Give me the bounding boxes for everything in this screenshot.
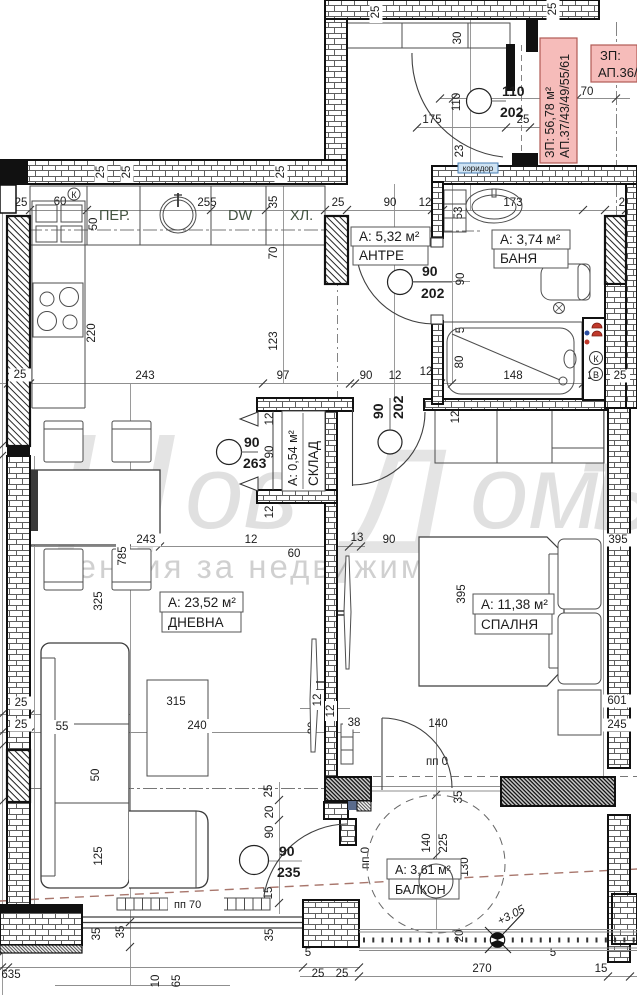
svg-text:202: 202 [421,285,445,301]
svg-text:23: 23 [454,145,466,158]
svg-text:ПЕР.: ПЕР. [99,208,130,224]
svg-text:12: 12 [389,370,402,382]
svg-text:315: 315 [166,696,185,708]
svg-text:395: 395 [608,534,627,546]
svg-text:50: 50 [90,769,102,782]
svg-text:255: 255 [197,197,216,209]
svg-text:АП.36/: АП.36/ [598,65,637,80]
svg-text:25: 25 [332,197,345,209]
svg-text:140: 140 [428,718,447,730]
svg-text:ЗП: 56,78 м²: ЗП: 56,78 м² [543,87,557,158]
svg-text:А: 23,52 м²: А: 23,52 м² [168,595,236,610]
svg-text:12: 12 [264,413,276,426]
svg-text:5: 5 [550,947,556,959]
svg-text:225: 225 [438,833,450,852]
svg-text:80: 80 [454,356,466,369]
svg-text:25: 25 [14,369,27,381]
svg-text:245: 245 [607,719,626,731]
svg-text:СКЛАД: СКЛАД [306,441,321,486]
svg-text:К: К [71,190,77,200]
svg-text:785: 785 [117,546,129,565]
svg-text:263: 263 [243,455,267,471]
svg-text:А: 5,32 м²: А: 5,32 м² [359,229,420,244]
svg-text:DW: DW [228,208,252,224]
svg-text:12: 12 [245,534,258,546]
svg-text:70: 70 [268,247,280,260]
svg-text:90: 90 [360,370,373,382]
svg-text:220: 220 [86,323,98,342]
svg-text:235: 235 [277,864,301,880]
svg-text:30: 30 [452,32,464,45]
svg-text:53: 53 [453,207,465,220]
svg-text:240: 240 [187,720,206,732]
svg-text:25: 25 [95,166,107,179]
svg-text:243: 243 [136,534,155,546]
svg-text:15: 15 [595,963,608,975]
svg-text:90: 90 [264,826,276,839]
svg-text:35: 35 [91,928,103,941]
svg-text:35: 35 [453,791,465,804]
svg-text:110: 110 [451,93,463,111]
svg-text:635: 635 [1,969,20,981]
svg-text:пп 0: пп 0 [360,847,372,869]
svg-text:148: 148 [503,370,522,382]
svg-text:25: 25 [370,6,382,19]
svg-text:25: 25 [547,3,559,16]
svg-text:ХЛ.: ХЛ. [290,208,313,224]
svg-text:202: 202 [390,395,406,419]
svg-text:60: 60 [288,548,301,560]
svg-text:110: 110 [502,83,525,99]
svg-text:60: 60 [54,196,67,208]
svg-text:125: 125 [93,846,105,865]
svg-text:12: 12 [325,705,337,718]
svg-text:202: 202 [500,104,524,120]
svg-text:В: В [593,370,599,380]
svg-text:12: 12 [264,506,276,519]
svg-text:90: 90 [279,843,295,859]
svg-text:12: 12 [312,694,324,707]
svg-text:ДНЕВНА: ДНЕВНА [168,615,224,630]
svg-text:140: 140 [421,833,433,852]
svg-text:270: 270 [472,963,491,975]
svg-text:395: 395 [456,584,468,603]
svg-text:35: 35 [264,929,276,942]
svg-text:25: 25 [614,370,627,382]
svg-text:25: 25 [15,719,28,731]
svg-text:СПАЛНЯ: СПАЛНЯ [481,617,538,632]
svg-text:90: 90 [384,197,397,209]
svg-text:10: 10 [150,975,162,988]
svg-text:коридор: коридор [463,164,494,173]
svg-text:пп 70: пп 70 [174,899,201,911]
svg-text:БАНЯ: БАНЯ [500,251,537,266]
svg-text:123: 123 [268,331,280,350]
svg-text:55: 55 [56,721,69,733]
svg-text:243: 243 [135,370,154,382]
svg-text:90: 90 [383,534,396,546]
svg-text:пп 0: пп 0 [426,756,448,768]
svg-text:97: 97 [277,370,290,382]
svg-text:25: 25 [336,968,349,980]
svg-text:25: 25 [15,697,28,709]
svg-text:25: 25 [263,785,275,798]
svg-text:А: 11,38 м²: А: 11,38 м² [481,597,548,612]
svg-text:325: 325 [93,591,105,610]
svg-text:АП.37/43/49/55/61: АП.37/43/49/55/61 [558,54,572,158]
svg-text:ЗП:: ЗП: [600,48,621,63]
svg-text:25: 25 [275,166,287,179]
svg-text:90: 90 [455,273,467,286]
svg-text:90: 90 [244,434,260,450]
svg-text:12: 12 [450,411,462,424]
svg-text:20: 20 [264,806,276,819]
svg-text:90: 90 [370,403,386,419]
svg-text:БАЛКОН: БАЛКОН [395,883,446,897]
svg-text:38: 38 [348,717,361,729]
svg-text:35: 35 [268,196,280,209]
svg-text:70: 70 [581,86,594,98]
svg-text:К: К [593,354,599,364]
svg-text:А: 0,54 м²: А: 0,54 м² [286,430,300,486]
svg-text:601: 601 [607,695,626,707]
svg-text:25: 25 [121,166,133,179]
svg-text:65: 65 [171,975,183,988]
svg-text:25: 25 [312,968,325,980]
svg-text:5: 5 [305,947,311,959]
svg-text:12: 12 [420,366,433,378]
svg-text:13: 13 [351,532,364,544]
svg-text:А: 3,74 м²: А: 3,74 м² [500,232,561,247]
svg-text:АНТРЕ: АНТРЕ [359,248,404,263]
svg-text:12: 12 [419,197,432,209]
